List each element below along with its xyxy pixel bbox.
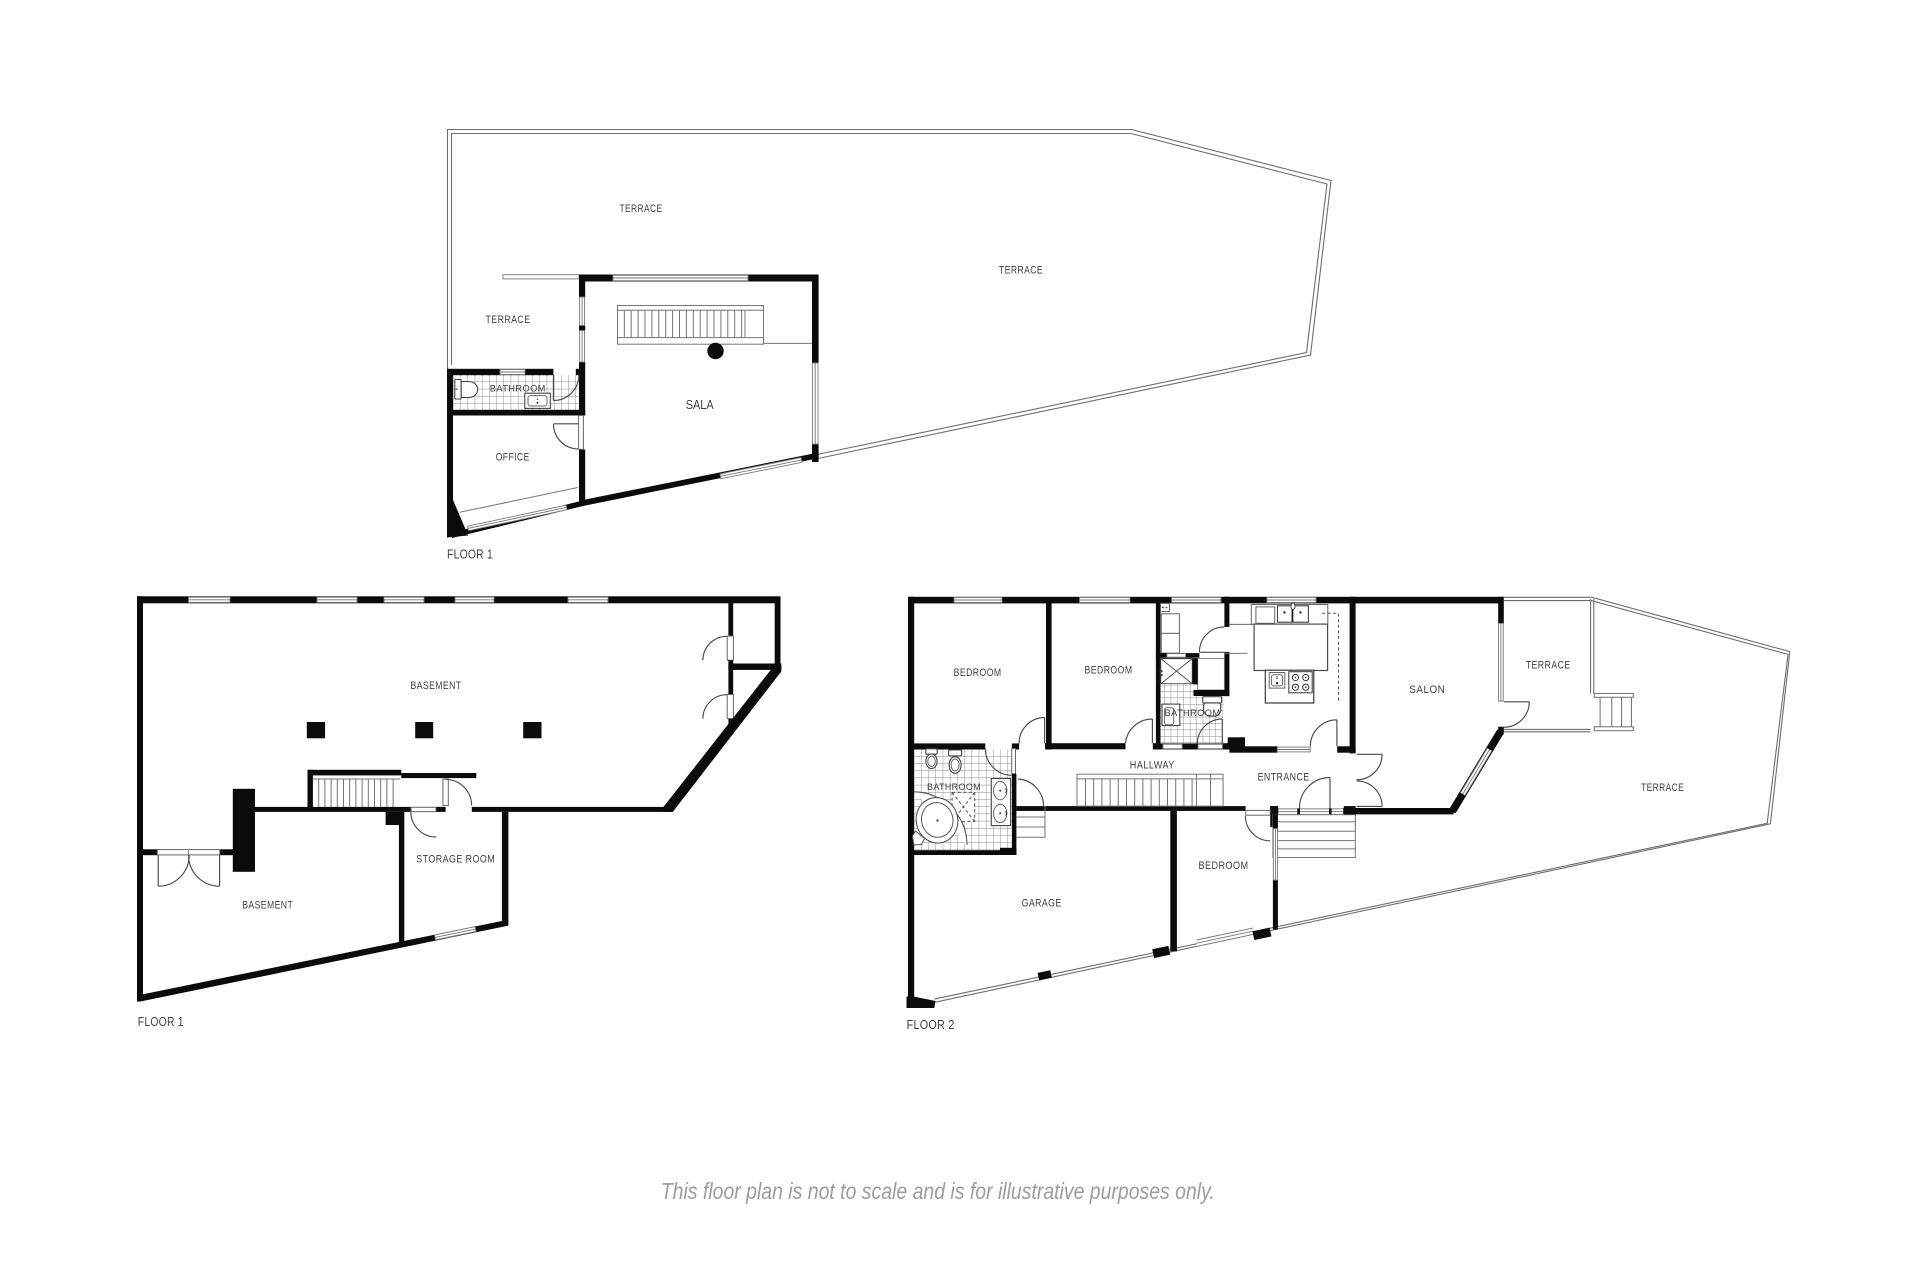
svg-text:HALLWAY: HALLWAY xyxy=(1130,760,1175,772)
svg-text:FLOOR 1: FLOOR 1 xyxy=(138,1014,184,1029)
svg-text:SALON: SALON xyxy=(1409,684,1445,696)
svg-text:FLOOR 1: FLOOR 1 xyxy=(447,547,493,562)
svg-text:STORAGE ROOM: STORAGE ROOM xyxy=(416,854,495,866)
svg-text:BASEMENT: BASEMENT xyxy=(242,900,293,912)
svg-text:TERRACE: TERRACE xyxy=(1641,782,1684,794)
svg-text:TERRACE: TERRACE xyxy=(1526,660,1571,672)
svg-text:BATHROOM: BATHROOM xyxy=(490,384,546,395)
svg-text:ENTRANCE: ENTRANCE xyxy=(1258,772,1310,784)
svg-text:BATHROOM: BATHROOM xyxy=(927,782,981,793)
svg-text:BEDROOM: BEDROOM xyxy=(954,667,1002,679)
svg-text:BEDROOM: BEDROOM xyxy=(1199,860,1249,872)
svg-text:SALA: SALA xyxy=(686,398,715,412)
svg-text:TERRACE: TERRACE xyxy=(999,265,1043,277)
svg-text:BATHROOM: BATHROOM xyxy=(1165,708,1221,719)
svg-text:BASEMENT: BASEMENT xyxy=(411,680,462,692)
svg-text:OFFICE: OFFICE xyxy=(496,451,530,463)
svg-text:This floor plan is not to scal: This floor plan is not to scale and is f… xyxy=(661,1178,1215,1204)
svg-text:GARAGE: GARAGE xyxy=(1022,898,1062,910)
svg-text:FLOOR 2: FLOOR 2 xyxy=(907,1017,955,1032)
svg-text:TERRACE: TERRACE xyxy=(486,314,531,326)
svg-text:TERRACE: TERRACE xyxy=(620,203,663,215)
svg-text:BEDROOM: BEDROOM xyxy=(1085,665,1133,677)
